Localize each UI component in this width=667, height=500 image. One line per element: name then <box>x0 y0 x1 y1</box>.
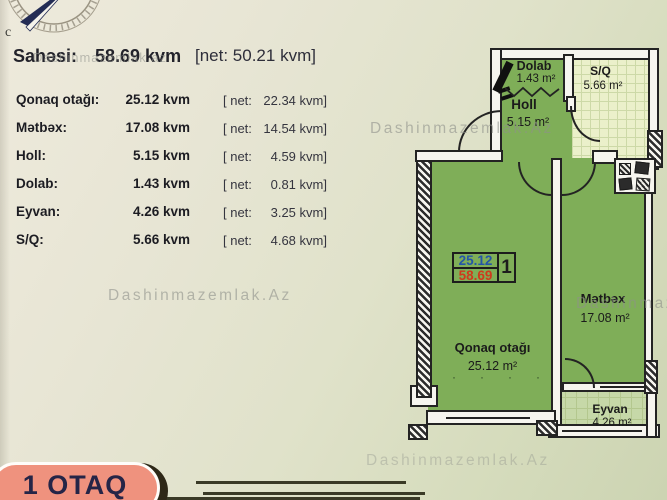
wall-eyvan-right <box>646 390 657 438</box>
qonaq-dots: ···· <box>452 370 564 384</box>
label-dolab-area: 1.43 m² <box>503 73 569 85</box>
badge-room-count: 1 <box>497 254 514 281</box>
fixture-icon <box>618 177 632 190</box>
fixture-icon <box>619 163 631 175</box>
fixture-icon <box>634 161 649 175</box>
watermark: Dashinmazemlak.Az <box>108 287 292 305</box>
room-count-pill-label: 1 OTAQ <box>23 470 128 500</box>
footer-line <box>203 492 425 495</box>
label-qonaq: Qonaq otağı <box>440 340 545 355</box>
watermark: Dashinmazemlak.Az <box>366 452 550 470</box>
label-sq: S/Q <box>573 64 628 78</box>
svg-text:c: c <box>5 25 11 40</box>
badge-net-area: 25.12 <box>454 254 497 269</box>
label-eyvan-area: 4.26 m² <box>582 417 642 429</box>
watermark-title: Dashinmazemlak.az <box>33 50 167 65</box>
footer-line <box>196 481 406 484</box>
hatch-bottom-mid <box>536 420 558 436</box>
watermark: Dashinmazemlak.Az <box>370 120 554 138</box>
window-line-eyvan <box>562 430 642 432</box>
fixture-icon <box>636 178 651 192</box>
window-line-eyvan-top <box>600 386 648 388</box>
area-badge-values: 25.12 58.69 <box>454 254 497 281</box>
window-line-qonaq <box>446 417 530 419</box>
label-sq-area: 5.66 m² <box>573 80 633 92</box>
label-eyvan: Eyvan <box>582 402 638 416</box>
label-dolab: Dolab <box>503 59 565 73</box>
label-holl: Holl <box>500 97 548 112</box>
wall-right-mid <box>644 166 653 366</box>
hatch-right-lower <box>644 360 658 394</box>
room-count-pill: 1 OTAQ <box>0 462 160 500</box>
area-badge: 25.12 58.69 1 <box>452 252 516 283</box>
wall-divider <box>551 158 562 434</box>
listing-photo: c Sahəsi: 58.69 kvm [net: 50.21 kvm] Das… <box>0 0 667 500</box>
hatch-left-wall <box>416 160 432 398</box>
badge-gross-area: 58.69 <box>454 269 497 282</box>
fixtures-block <box>614 158 656 194</box>
floor-plan: Dolab 1.43 m² S/Q 5.66 m² Holl 5.15 m² Q… <box>0 0 667 500</box>
watermark: Dashinmazemlak.Az <box>576 295 667 313</box>
label-metbex-area: 17.08 m² <box>572 311 638 325</box>
hatch-bottom-left <box>408 424 428 440</box>
